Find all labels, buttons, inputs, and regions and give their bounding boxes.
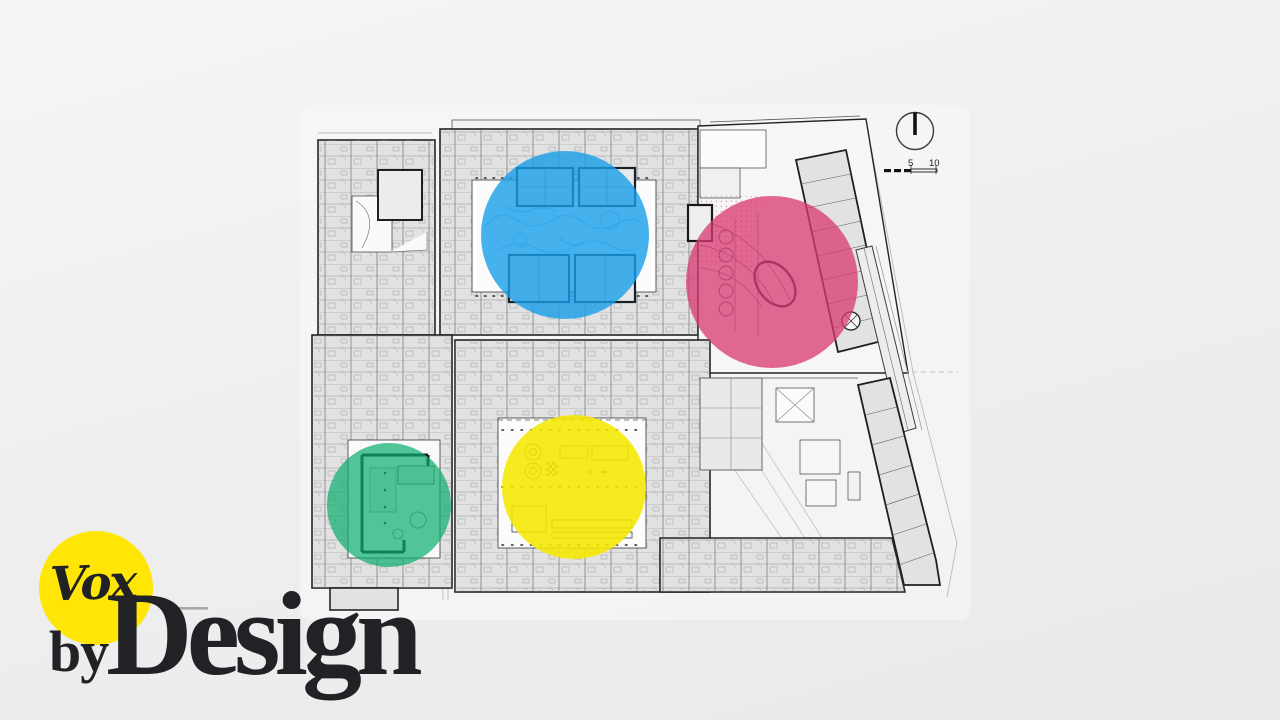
video-frame: 5 10 Vox by Design [0,0,1280,720]
highlight-circle-blue [481,151,649,319]
scale-label-10: 10 [929,158,940,169]
byline-text: by [49,623,108,681]
scale-label-5: 5 [908,158,913,169]
highlight-circle-pink [686,196,858,368]
highlight-circle-green [327,443,451,567]
series-title-text: Design [106,574,417,694]
highlight-circle-yellow [502,415,646,559]
top-left-wing [318,140,435,335]
